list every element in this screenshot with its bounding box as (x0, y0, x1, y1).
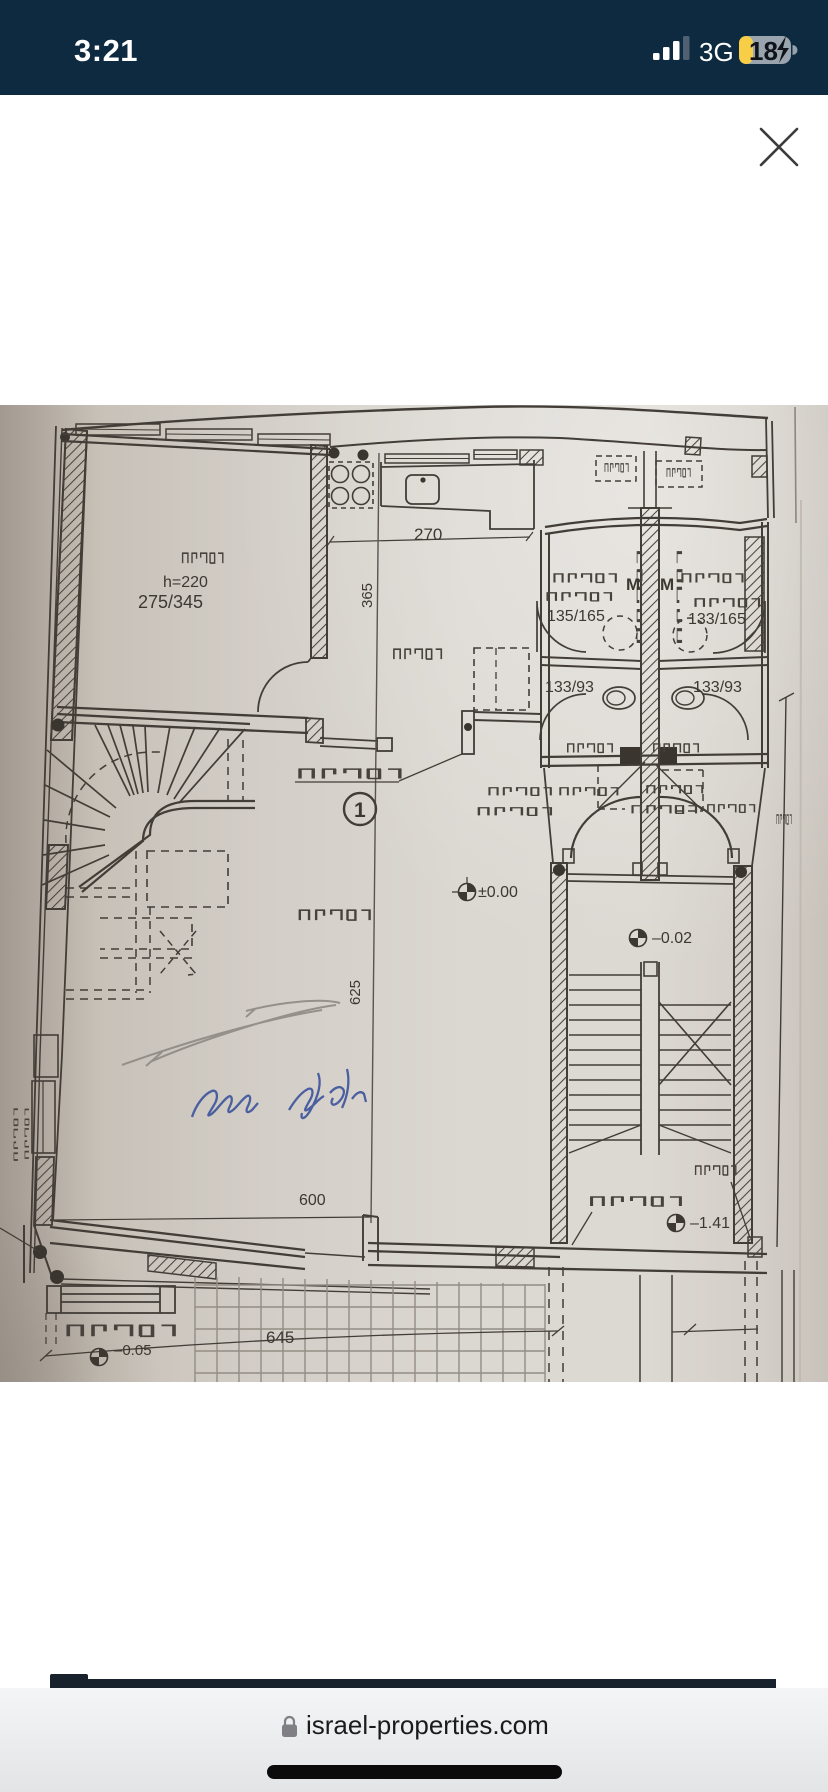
svg-text:h=220: h=220 (163, 574, 208, 591)
svg-text:625: 625 (347, 980, 364, 1005)
svg-text:18: 18 (749, 36, 778, 66)
svg-text:275/345: 275/345 (138, 592, 203, 612)
svg-text:365: 365 (359, 583, 376, 608)
svg-text:270: 270 (414, 525, 442, 544)
svg-text:–1.41: –1.41 (690, 1215, 730, 1232)
svg-text:–0.02: –0.02 (652, 930, 692, 947)
svg-text:±0.00: ±0.00 (478, 884, 518, 901)
svg-text:133/165: 133/165 (688, 611, 746, 628)
svg-text:133/93: 133/93 (693, 679, 742, 696)
svg-text:1: 1 (354, 799, 366, 822)
svg-text:135/165: 135/165 (547, 608, 605, 625)
svg-text:–0.05: –0.05 (114, 1342, 152, 1359)
svg-text:133/93: 133/93 (545, 679, 594, 696)
svg-text:645: 645 (266, 1328, 294, 1347)
svg-text:M: M (660, 575, 674, 594)
svg-text:600: 600 (299, 1192, 326, 1209)
svg-text:M: M (626, 575, 640, 594)
svg-text:3G: 3G (699, 37, 734, 67)
